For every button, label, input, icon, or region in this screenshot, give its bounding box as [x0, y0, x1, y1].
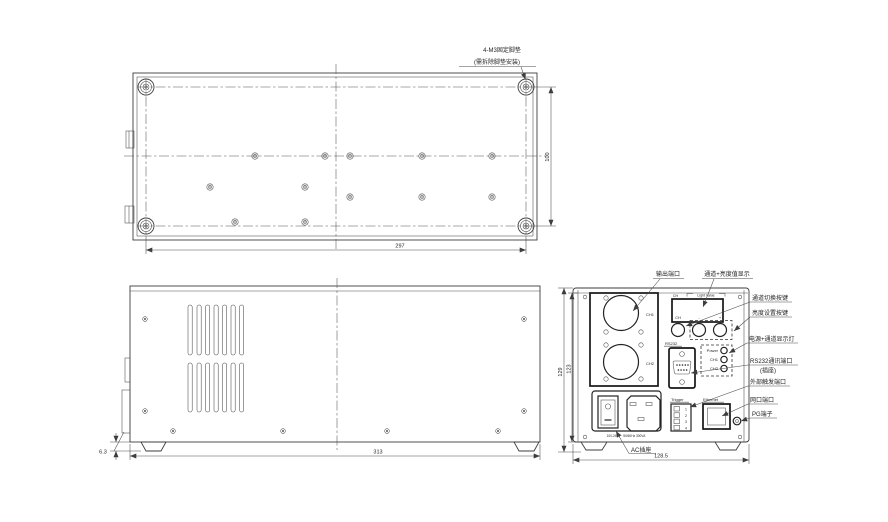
- dsub-outline: [673, 361, 691, 374]
- dim-width-label: 297: [395, 244, 404, 250]
- ch1-led-icon: [721, 356, 727, 362]
- side-view: 313 6.3: [99, 278, 540, 460]
- side-feet: [141, 442, 539, 451]
- rs232-group: RS232: [664, 341, 695, 388]
- trigger-pin-2: 2: [685, 414, 687, 418]
- ch2-connector: [604, 345, 639, 380]
- callout-trigger-text: 外部触发端口: [750, 378, 786, 386]
- dim-313: 313: [130, 444, 540, 460]
- callout-ac-socket-text: AC插座: [631, 446, 651, 454]
- bottom-view-inner-outline: [137, 77, 533, 236]
- power-switch: [598, 396, 618, 428]
- drawing-sheet: 4-M3固定脚垫 (需拆除脚垫安装) 297 100: [0, 0, 888, 522]
- callout-brightness-set: 亮度设置按键: [734, 309, 792, 331]
- callout-power-leds-text: 电源+通道显示灯: [749, 335, 795, 343]
- brightness-buttons-outline: [690, 321, 732, 340]
- callout-display-text: 通道+亮度值显示: [704, 270, 750, 278]
- side-tabs: [114, 358, 130, 451]
- note-line1: 4-M3固定脚垫: [483, 46, 521, 54]
- bottom-view: 4-M3固定脚垫 (需拆除脚垫安装) 297 100: [124, 46, 556, 254]
- callout-rs232-text-line1: RS232通讯端口: [750, 357, 792, 365]
- side-screws: [143, 317, 527, 434]
- led-indicator-group: Power CH1 CH2: [701, 345, 732, 376]
- front-view: CH1 CH2 CH Light Value CH - + RS232 Pow: [558, 288, 749, 464]
- dsub-pins: [676, 364, 689, 371]
- rs232-connector: [669, 348, 695, 388]
- minus-button: [693, 324, 706, 337]
- callout-trigger: 外部触发端口: [690, 378, 790, 407]
- rs232-label: RS232: [665, 341, 678, 346]
- foot-pad-note: 4-M3固定脚垫 (需拆除脚垫安装): [459, 46, 536, 80]
- side-view-outline: [130, 286, 540, 442]
- callout-pg: PG端子: [741, 410, 777, 421]
- output-port-panel: CH1 CH2: [590, 293, 658, 386]
- callout-display: 通道+亮度值显示: [702, 270, 753, 307]
- ch2-label: CH2: [646, 361, 655, 366]
- dim-depth-label: 100: [545, 152, 551, 161]
- plus-button: [714, 324, 727, 337]
- ethernet-group: Ethernet: [702, 397, 730, 429]
- iec-inlet: [627, 396, 660, 431]
- callout-channel-switch-text: 通道切换按键: [752, 294, 788, 302]
- display-value-label: Light Value: [697, 294, 714, 298]
- callout-output-port-text: 输出端口: [656, 270, 680, 278]
- button-plus-label: +: [719, 315, 722, 320]
- power-off-symbol: [605, 404, 610, 409]
- display-ch-label: CH: [673, 294, 679, 298]
- trigger-pin-1: 1: [685, 408, 687, 412]
- trigger-terminals: [674, 407, 680, 430]
- bottom-screws: [207, 153, 495, 225]
- button-minus-label: -: [698, 315, 700, 320]
- dim-front-width-label: 128.5: [654, 454, 668, 460]
- dim-128-5: 128.5: [573, 444, 749, 464]
- trigger-pin-4: 4: [685, 426, 687, 430]
- vent-slots: [188, 305, 244, 412]
- bottom-view-outline: [133, 73, 537, 240]
- center-lines: [124, 64, 546, 249]
- ch1-connector: [604, 296, 639, 331]
- callout-brightness-set-text: 亮度设置按键: [752, 309, 788, 317]
- dim-foot-height-label: 6.3: [99, 450, 107, 456]
- pg-terminal: [733, 417, 741, 425]
- ac-rating-label: 100-240V~ 50/60Hz 300VA: [607, 434, 647, 438]
- trigger-label: Trigger: [671, 397, 684, 402]
- dim-side-width-label: 313: [373, 450, 382, 456]
- technical-drawing-svg: 4-M3固定脚垫 (需拆除脚垫安装) 297 100: [0, 0, 888, 522]
- led-power-label: Power: [707, 348, 719, 353]
- trigger-pin-3: 3: [685, 420, 687, 424]
- note-line2: (需拆除脚垫安装): [474, 58, 520, 66]
- button-ch-label: CH: [675, 315, 681, 320]
- ac-inlet-group: 100-240V~ 50/60Hz 300VA: [592, 391, 661, 438]
- callout-power-leds: 电源+通道显示灯: [729, 335, 798, 353]
- dim-123: 123: [567, 293, 579, 442]
- dim-height-outer-label: 129: [558, 367, 564, 376]
- callout-pg-text: PG端子: [752, 410, 773, 418]
- ch1-label: CH1: [646, 312, 655, 317]
- trigger-group: Trigger 1 2 3 4: [670, 397, 691, 431]
- dim-height-inner-label: 123: [567, 364, 573, 373]
- callout-ethernet-text: 网口端口: [750, 396, 774, 404]
- front-feet: [581, 442, 741, 450]
- channel-button: [672, 324, 685, 337]
- power-led-icon: [721, 347, 727, 353]
- callout-rs232: RS232通讯端口 (插座): [691, 357, 798, 375]
- led-ch1-label: CH1: [710, 357, 719, 362]
- callout-rs232-text-line2: (插座): [760, 367, 776, 375]
